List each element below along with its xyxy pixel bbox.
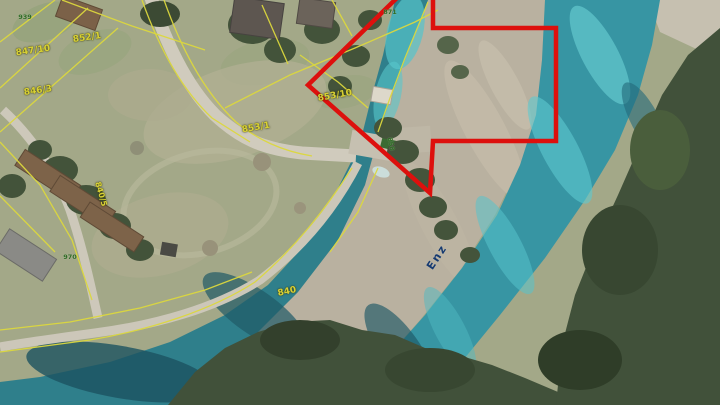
dirt-spot bbox=[130, 141, 144, 155]
aerial-map[interactable]: 939 852/1 847/10 846/3 853/1 853/10 840/… bbox=[0, 0, 720, 405]
building bbox=[230, 0, 285, 39]
dirt-spot bbox=[202, 240, 218, 256]
dirt-spot bbox=[294, 202, 306, 214]
building bbox=[296, 0, 335, 28]
map-canvas bbox=[0, 0, 720, 405]
shed-white bbox=[371, 86, 393, 104]
shed-dark bbox=[160, 242, 178, 258]
dirt-spot bbox=[253, 153, 271, 171]
